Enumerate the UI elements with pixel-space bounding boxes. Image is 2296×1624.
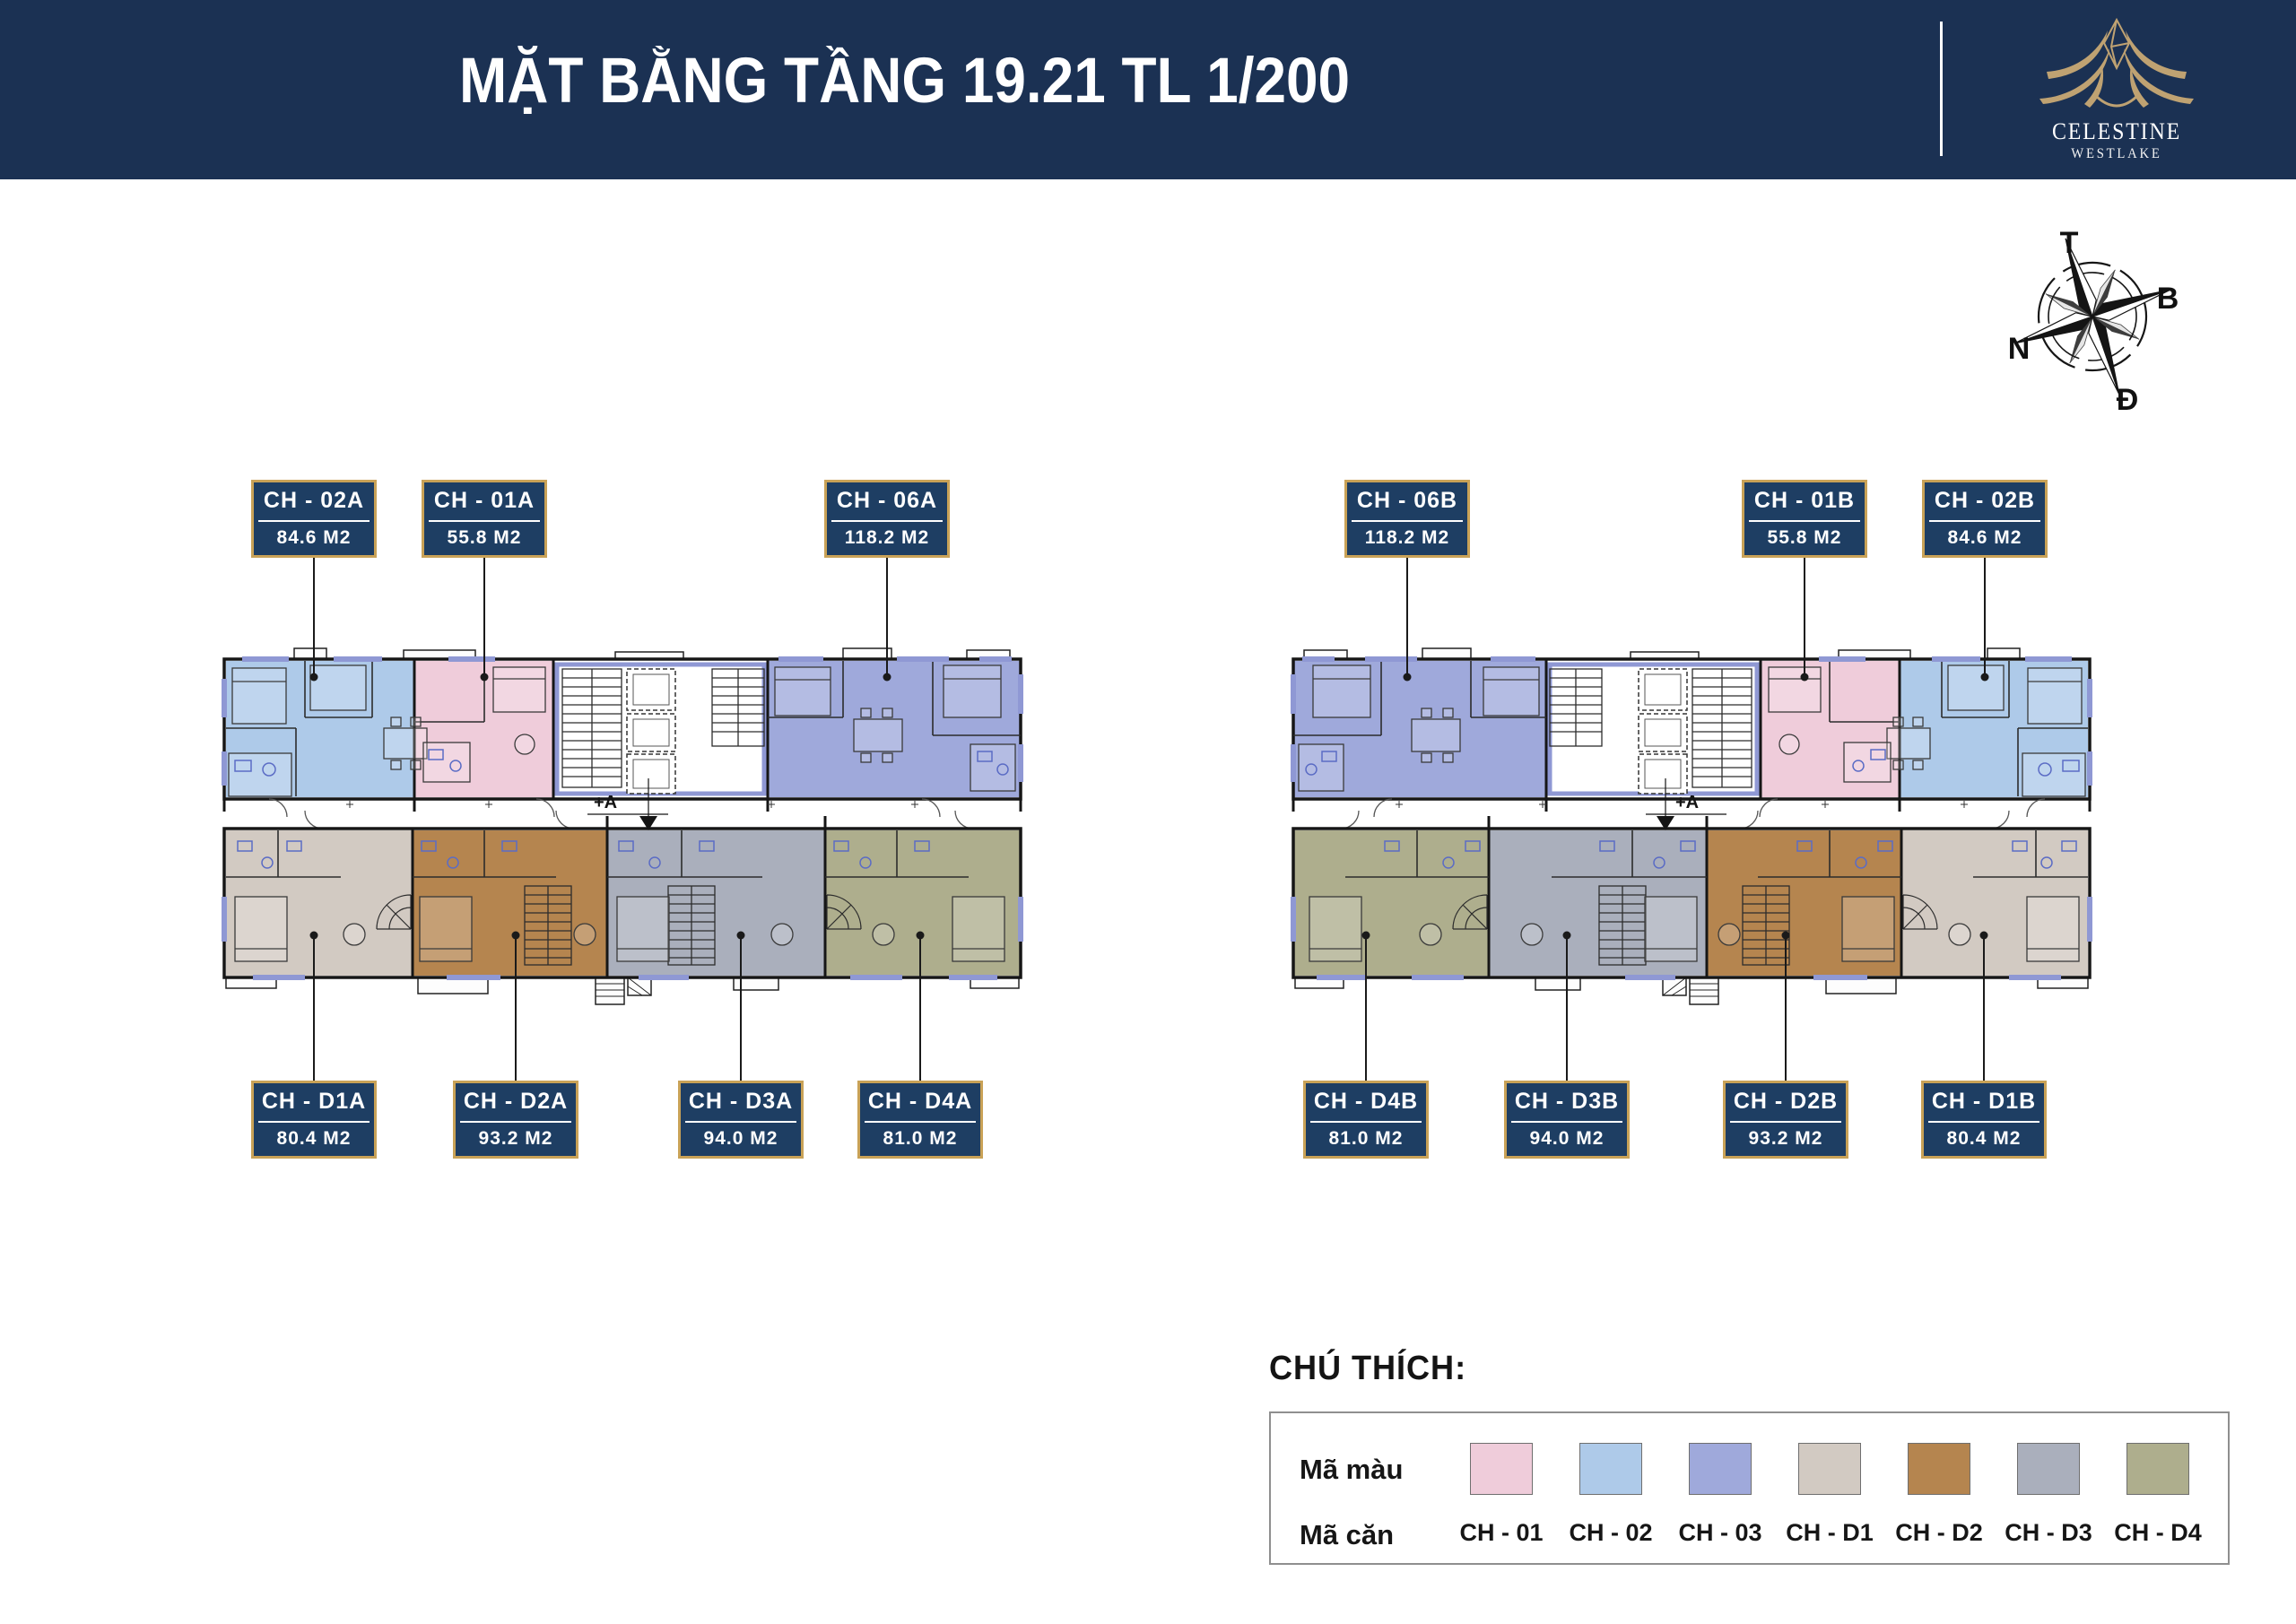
unit-label: CH - D2B93.2 M2	[1723, 1081, 1848, 1159]
legend-color-row-label: Mã màu	[1300, 1454, 1403, 1486]
unit-code: CH - D1A	[258, 1083, 370, 1123]
leader-dot	[737, 932, 745, 940]
unit-area: 55.8 M2	[424, 522, 544, 555]
legend-code-row-label: Mã căn	[1300, 1519, 1394, 1551]
legend-unit-code: CH - D3	[1994, 1519, 2103, 1547]
unit-label: CH - 01A55.8 M2	[422, 480, 547, 558]
page: MẶT BẰNG TẦNG 19.21 TL 1/200 CELESTINE W…	[0, 0, 2296, 1624]
legend-box: Mã màu Mã căn CH - 01CH - 02CH - 03CH - …	[1269, 1411, 2230, 1565]
leader-dot	[1981, 673, 1989, 682]
legend-title: CHÚ THÍCH:	[1269, 1350, 1466, 1388]
unit-area: 55.8 M2	[1744, 522, 1865, 555]
legend-color-swatch	[1689, 1443, 1752, 1495]
legend-unit-code: CH - 01	[1447, 1519, 1556, 1547]
leader-dot	[883, 673, 891, 682]
leader-dot	[1801, 673, 1809, 682]
leader-dot	[310, 673, 318, 682]
unit-area: 84.6 M2	[254, 522, 374, 555]
unit-area: 81.0 M2	[860, 1123, 980, 1156]
leader-dot	[1782, 932, 1790, 940]
unit-area: 93.2 M2	[1726, 1123, 1846, 1156]
unit-area: 94.0 M2	[681, 1123, 801, 1156]
unit-area: 84.6 M2	[1925, 522, 2045, 555]
leader-dot	[481, 673, 489, 682]
floor-plan-block-b	[1293, 648, 2090, 1004]
unit-label: CH - D4B81.0 M2	[1303, 1081, 1429, 1159]
floor-plan-drawing	[0, 0, 2296, 1624]
legend-color-swatch	[1908, 1443, 1970, 1495]
leader-dot	[1362, 932, 1370, 940]
unit-code: CH - D1B	[1928, 1083, 2039, 1123]
unit-label: CH - D3B94.0 M2	[1504, 1081, 1630, 1159]
unit-area: 93.2 M2	[456, 1123, 576, 1156]
unit-code: CH - 02B	[1929, 482, 2040, 522]
unit-area: 80.4 M2	[1924, 1123, 2044, 1156]
unit-area: 94.0 M2	[1507, 1123, 1627, 1156]
legend-color-swatch	[2017, 1443, 2080, 1495]
unit-label: CH - D3A94.0 M2	[678, 1081, 804, 1159]
floor-plan-block-a	[224, 648, 1021, 1004]
unit-area: 81.0 M2	[1306, 1123, 1426, 1156]
legend-unit-code: CH - 02	[1556, 1519, 1665, 1547]
unit-area: 118.2 M2	[827, 522, 947, 555]
unit-label: CH - 02B84.6 M2	[1922, 480, 2048, 558]
section-marker-b: +A	[1675, 793, 1699, 813]
unit-area: 80.4 M2	[254, 1123, 374, 1156]
unit-label: CH - D2A93.2 M2	[453, 1081, 578, 1159]
legend-unit-code: CH - D2	[1884, 1519, 1994, 1547]
unit-label: CH - 01B55.8 M2	[1742, 480, 1867, 558]
legend-color-swatch	[1798, 1443, 1861, 1495]
legend-color-swatch	[2126, 1443, 2189, 1495]
unit-code: CH - 06B	[1352, 482, 1463, 522]
unit-code: CH - D2A	[460, 1083, 571, 1123]
unit-code: CH - D3B	[1511, 1083, 1622, 1123]
legend-unit-code: CH - D4	[2103, 1519, 2213, 1547]
legend-color-swatch	[1579, 1443, 1642, 1495]
unit-area: 118.2 M2	[1347, 522, 1467, 555]
unit-code: CH - 01A	[429, 482, 540, 522]
section-marker-a: +A	[594, 793, 617, 813]
unit-code: CH - D3A	[685, 1083, 796, 1123]
leader-dot	[512, 932, 520, 940]
unit-code: CH - 06A	[831, 482, 943, 522]
unit-label: CH - D4A81.0 M2	[857, 1081, 983, 1159]
legend-color-swatch	[1470, 1443, 1533, 1495]
legend-unit-code: CH - D1	[1775, 1519, 1884, 1547]
leader-dot	[1563, 932, 1571, 940]
unit-label: CH - D1B80.4 M2	[1921, 1081, 2047, 1159]
unit-code: CH - D4B	[1310, 1083, 1422, 1123]
leader-dot	[1404, 673, 1412, 682]
unit-code: CH - D4A	[865, 1083, 976, 1123]
leader-lines	[310, 546, 1989, 1081]
unit-code: CH - D2B	[1730, 1083, 1841, 1123]
leader-dot	[917, 932, 925, 940]
unit-code: CH - 02A	[258, 482, 370, 522]
leader-dot	[310, 932, 318, 940]
leader-dot	[1980, 932, 1988, 940]
unit-label: CH - 02A84.6 M2	[251, 480, 377, 558]
unit-label: CH - 06B118.2 M2	[1344, 480, 1470, 558]
unit-code: CH - 01B	[1749, 482, 1860, 522]
unit-label: CH - 06A118.2 M2	[824, 480, 950, 558]
legend-unit-code: CH - 03	[1665, 1519, 1775, 1547]
unit-label: CH - D1A80.4 M2	[251, 1081, 377, 1159]
